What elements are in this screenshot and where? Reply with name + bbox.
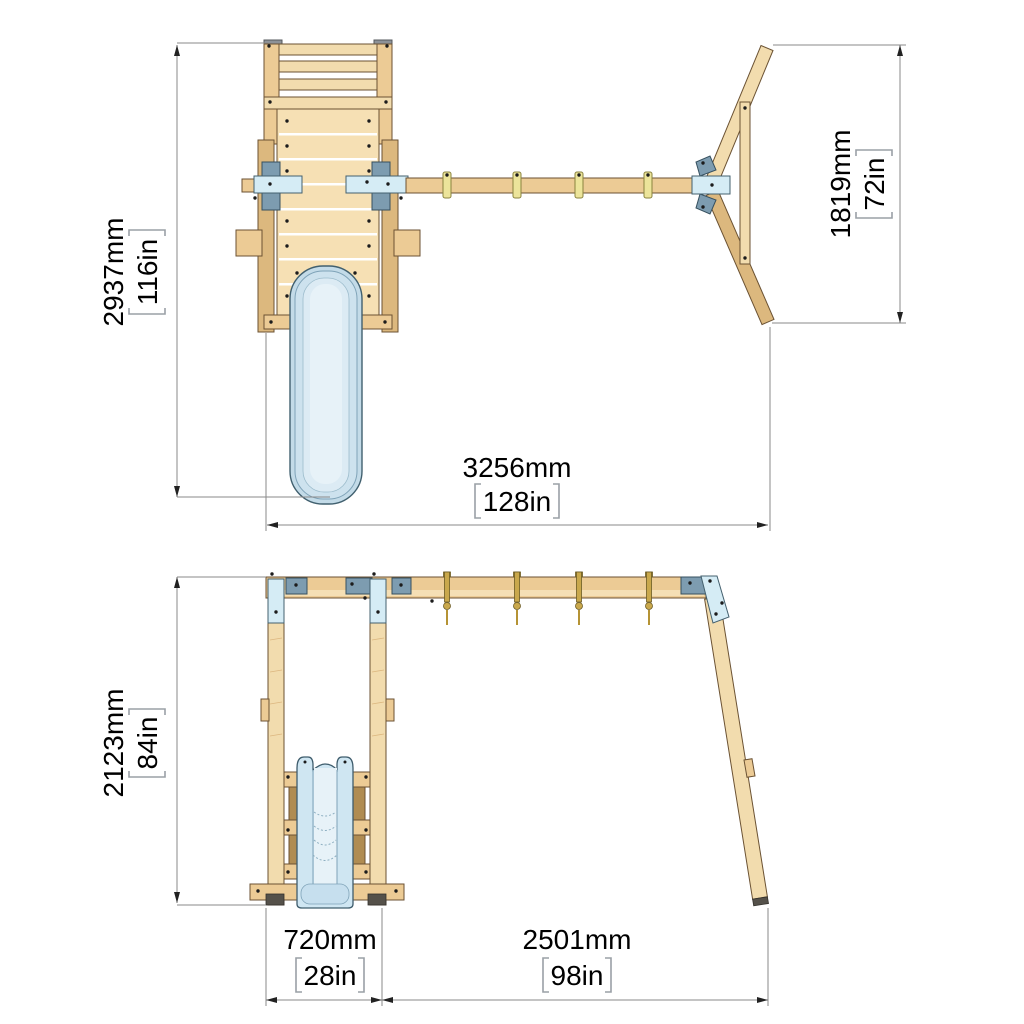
corner-bracket bbox=[372, 162, 390, 177]
corner-bracket bbox=[262, 193, 280, 210]
post-bracket bbox=[268, 579, 284, 623]
post-right bbox=[370, 598, 386, 905]
monkey-bar-beam-plan bbox=[406, 172, 702, 198]
aframe-front bbox=[681, 576, 769, 906]
tower-side-frame bbox=[394, 230, 420, 256]
technical-drawing-page: 2937mm 116in 1819mm 72in 3256mm 128in 21… bbox=[0, 0, 1024, 1024]
slide-front bbox=[297, 757, 353, 908]
slide-highlight bbox=[310, 284, 342, 484]
hook bbox=[444, 572, 451, 625]
dim-value-in: 28in bbox=[304, 960, 357, 991]
hook bbox=[514, 572, 521, 625]
beam-highlight bbox=[268, 590, 704, 596]
aframe-brace bbox=[740, 102, 750, 264]
dimension-label-swing-bay: 2501mm 98in bbox=[523, 924, 632, 992]
dim-value-mm: 720mm bbox=[283, 924, 376, 955]
swing-set-dimension-drawing: 2937mm 116in 1819mm 72in 3256mm 128in 21… bbox=[0, 0, 1024, 1024]
front-view bbox=[250, 572, 769, 908]
hook bbox=[646, 572, 653, 625]
dim-value-mm: 2123mm bbox=[98, 689, 129, 798]
post-bracket bbox=[370, 579, 386, 623]
hook bbox=[576, 572, 583, 625]
aframe-plan bbox=[692, 46, 774, 325]
dimension-label-platform-bay: 720mm 28in bbox=[283, 924, 376, 992]
beam-cover-plate bbox=[254, 176, 302, 193]
dimension-label-aframe-depth: 1819mm 72in bbox=[825, 130, 892, 239]
slide-plan bbox=[290, 266, 362, 504]
dim-value-mm: 2937mm bbox=[98, 218, 129, 327]
slide-end bbox=[301, 884, 349, 904]
beam-cover-plate bbox=[346, 176, 408, 193]
dim-value-in: 72in bbox=[859, 158, 890, 211]
dim-value-mm: 3256mm bbox=[463, 452, 572, 483]
dimension-label-overall-width: 3256mm 128in bbox=[463, 452, 572, 518]
beam-plate bbox=[346, 578, 372, 594]
post-left bbox=[268, 598, 284, 905]
corner-bracket bbox=[262, 162, 280, 177]
dimension-label-overall-height-front: 2123mm 84in bbox=[98, 689, 165, 798]
dim-value-in: 84in bbox=[132, 717, 163, 770]
dimension-label-overall-height-top: 2937mm 116in bbox=[98, 218, 165, 327]
dim-value-mm: 2501mm bbox=[523, 924, 632, 955]
post-tab bbox=[261, 699, 269, 721]
ladder-rung bbox=[279, 61, 377, 72]
ladder-rung bbox=[279, 79, 377, 90]
ladder-slat bbox=[264, 44, 392, 55]
dim-value-in: 128in bbox=[483, 486, 552, 517]
tower-side-frame bbox=[236, 230, 262, 256]
dim-value-mm: 1819mm bbox=[825, 130, 856, 239]
top-view bbox=[236, 40, 774, 504]
post-foot bbox=[266, 894, 284, 905]
wood-grain bbox=[270, 638, 384, 736]
corner-bracket bbox=[372, 193, 390, 210]
angled-leg bbox=[705, 597, 768, 899]
dim-value-in: 98in bbox=[551, 960, 604, 991]
dim-value-in: 116in bbox=[132, 239, 163, 305]
beam-stub bbox=[242, 179, 254, 192]
slide-bed bbox=[314, 768, 337, 894]
platform-edge-rail bbox=[264, 97, 392, 109]
post-tab bbox=[386, 699, 394, 721]
post-foot bbox=[368, 894, 386, 905]
